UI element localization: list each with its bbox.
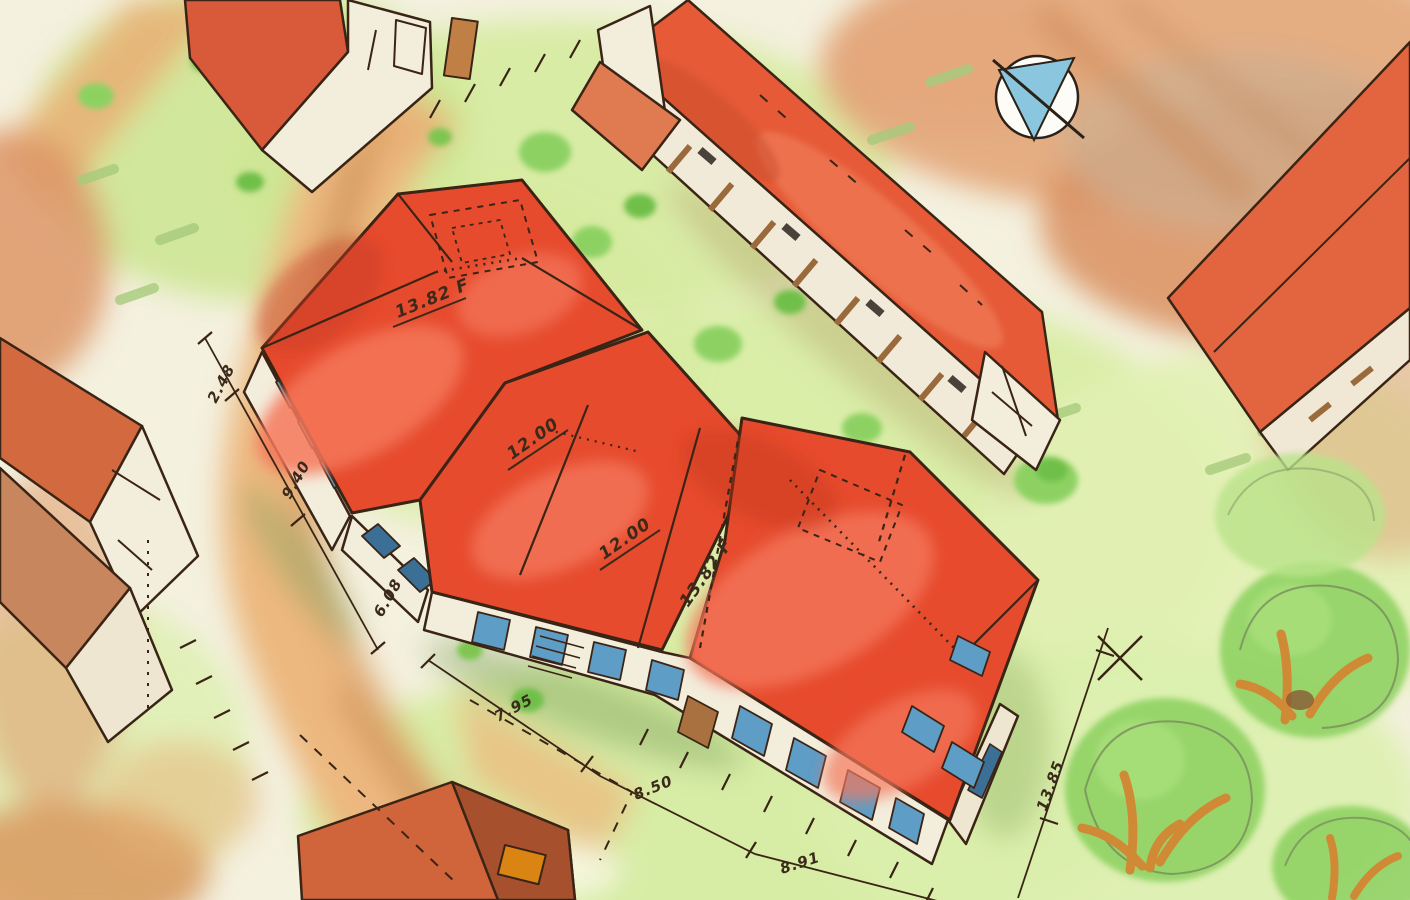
site-plan-canvas: 13.82 F 12.00 12.00 13.82 F 2.48 9.40 6.… xyxy=(0,0,1410,900)
tree-4 xyxy=(1215,453,1385,577)
tree-1 xyxy=(1065,698,1265,882)
site-plan-drawing: 13.82 F 12.00 12.00 13.82 F 2.48 9.40 6.… xyxy=(0,0,1410,900)
tree-2 xyxy=(1220,562,1410,738)
